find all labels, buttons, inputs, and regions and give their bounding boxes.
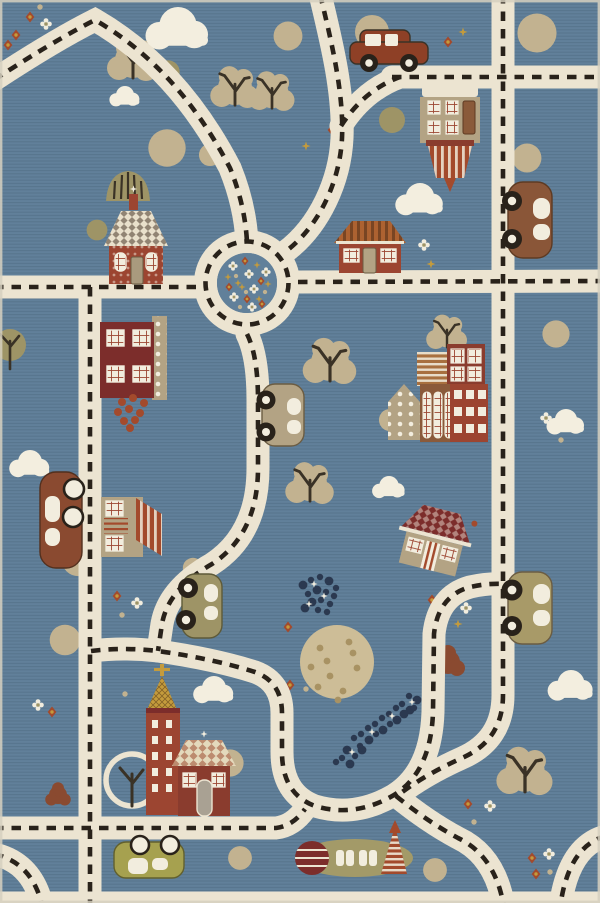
- car-brown-right: [502, 182, 552, 258]
- car-khaki-right: [502, 572, 553, 644]
- car-rust-left: [40, 472, 84, 568]
- car-khaki-center: [257, 384, 305, 446]
- car-olive-midleft: [176, 574, 222, 638]
- car-lime-bottom: [114, 836, 184, 878]
- play-rug: [0, 0, 600, 903]
